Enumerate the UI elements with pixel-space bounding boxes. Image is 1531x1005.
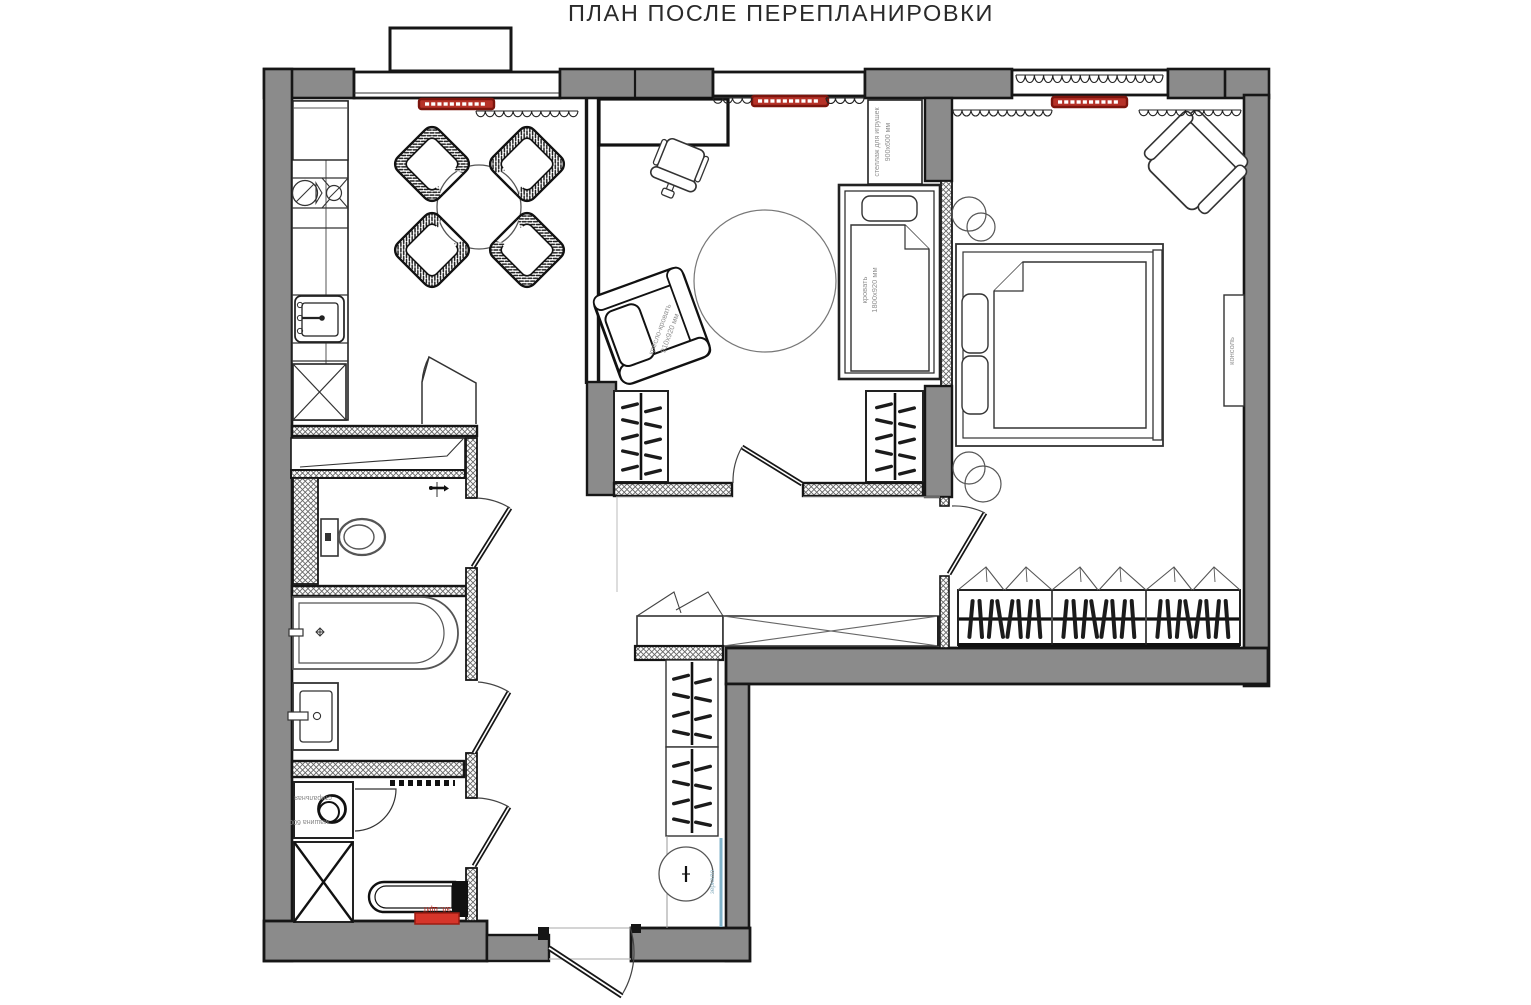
svg-text:стиральная: стиральная	[294, 794, 332, 801]
svg-text:ПЛАН ПОСЛЕ ПЕРЕПЛАНИРОВКИ: ПЛАН ПОСЛЕ ПЕРЕПЛАНИРОВКИ	[568, 0, 994, 26]
svg-text:кровать: кровать	[860, 276, 869, 303]
svg-text:900х600 мм: 900х600 мм	[885, 123, 892, 162]
svg-text:машина 600: машина 600	[289, 818, 329, 825]
svg-text:стеллаж для игрушек: стеллаж для игрушек	[874, 106, 881, 176]
svg-text:зеркало: зеркало	[709, 870, 716, 895]
svg-text:консоль: консоль	[1227, 337, 1236, 365]
svg-text:1800х920 мм: 1800х920 мм	[870, 267, 879, 312]
